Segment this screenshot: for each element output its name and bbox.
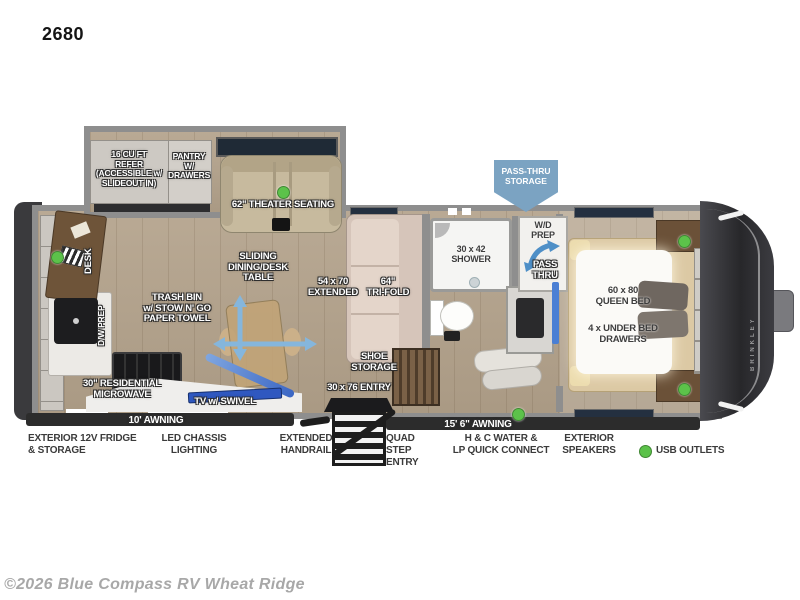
vanity-sink (516, 298, 544, 338)
toilet-bowl (440, 301, 474, 331)
couch-cupholder (272, 218, 290, 231)
wd-prep-label: W/D PREP (520, 220, 566, 241)
bathroom-wall-left (422, 214, 430, 364)
couch-divider1 (273, 162, 276, 226)
tv-swivel-label: TV w/ SWIVEL (180, 397, 270, 408)
window-bedroom-top (574, 207, 654, 218)
usb-dot-bedroom-top (678, 235, 691, 248)
couch-back (221, 156, 341, 172)
couch-armrest-left (221, 166, 233, 226)
usb-dot-theater (277, 186, 290, 199)
microwave-label: 30" RESIDENTIAL MICROWAVE (76, 379, 168, 400)
ext-label-speakers: EXTERIOR SPEAKERS (558, 433, 620, 457)
sofa-cushion-line2 (351, 313, 399, 315)
shoe-storage-label: SHOE STORAGE (348, 352, 400, 373)
ext-label-steps: QUAD STEP ENTRY (386, 433, 442, 468)
sliding-table-label: SLIDING DINING/DESK TABLE (208, 252, 308, 284)
ext-label-fridge: EXTERIOR 12V FRIDGE & STORAGE (28, 433, 140, 457)
pantry-label: PANTRY W/ DRAWERS (168, 152, 210, 181)
entry-door-sill (324, 398, 394, 412)
pass-thru-storage-text: PASS-THRU STORAGE (494, 166, 558, 186)
under-bed-label: 4 x UNDER BED DRAWERS (582, 324, 664, 346)
refer-label: 16 CU FT REFER (ACCESSIBLE w/ SLIDEOUT I… (90, 150, 168, 188)
window-slit-top (448, 208, 457, 215)
queen-bed-label: 60 x 80 QUEEN BED (584, 286, 662, 308)
shower-head-icon (435, 223, 450, 238)
ext-label-handrail: EXTENDED HANDRAIL (278, 433, 334, 457)
toilet-base (444, 331, 460, 341)
awning-left-label: 10' AWNING (96, 415, 216, 426)
floorplan-model-number: 2680 (42, 24, 84, 45)
usb-dot-bedroom-bottom (678, 383, 691, 396)
usb-legend-dot (639, 445, 652, 458)
table-slide-arrows (212, 292, 322, 367)
brand-name: BRINKLEY (750, 251, 756, 371)
shower-label: 30 x 42 SHOWER (438, 244, 504, 265)
wardrobe-mirror (552, 282, 559, 344)
step-bar (335, 454, 383, 460)
bathroom-vanity (506, 286, 554, 354)
theater-window (216, 137, 338, 157)
window-slit-top2 (462, 208, 471, 215)
usb-dot-awning (512, 408, 525, 421)
shower-drain (469, 277, 480, 288)
trash-bin-label: TRASH BIN w/ STOW N' GO PAPER TOWEL (127, 293, 227, 325)
ext-label-chassis: LED CHASSIS LIGHTING (156, 433, 232, 457)
couch-armrest-right (329, 166, 341, 226)
extended-table-label: 54 x 70 EXTENDED (304, 277, 362, 298)
dw-prep-label: D/W PREP (97, 298, 107, 354)
trifold-label: 64" TRI-FOLD (362, 277, 414, 298)
theater-label: 62" THEATER SEATING (216, 200, 350, 211)
copyright-watermark: ©2026 Blue Compass RV Wheat Ridge (4, 576, 305, 594)
sink-faucet (73, 318, 79, 324)
usb-legend-label: USB OUTLETS (656, 445, 736, 457)
front-cap: BRINKLEY (700, 201, 774, 421)
entry-label: 30 x 76 ENTRY (322, 383, 396, 394)
sofa-cushion-line1 (351, 265, 399, 267)
ext-label-water: H & C WATER & LP QUICK CONNECT (446, 433, 556, 457)
desk-label: DESK (84, 240, 95, 282)
pass-thru-label: PASS THRU (524, 260, 566, 281)
floorplan-diagram: BRINKLEY DESK D/W PREP 30 x 42 SHOW (0, 0, 800, 600)
bedroom-wall-bottom (556, 386, 563, 412)
usb-dot-desk (51, 251, 64, 264)
